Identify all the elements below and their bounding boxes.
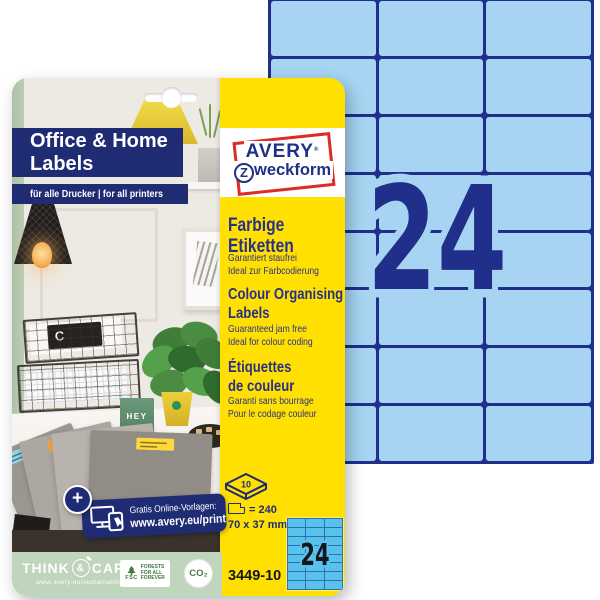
grid-paper <box>24 367 128 404</box>
label-cell <box>486 175 591 230</box>
feature-fr-1: Garanti sans bourrage <box>228 395 325 408</box>
section-features-de: Garantiert staufrei Ideal zur Farbcodier… <box>228 252 345 278</box>
label-cell <box>306 546 323 554</box>
label-cell <box>288 546 305 554</box>
think-care-logo: THINK&CARE <box>22 559 135 577</box>
sheet-count: 10 <box>241 480 251 490</box>
banner-title-line2: Labels <box>30 153 93 175</box>
label-cell <box>288 581 305 589</box>
sustainability-url: www.avery.eu/sustainability <box>36 579 126 586</box>
label-cell <box>325 519 342 527</box>
label-cell <box>306 563 323 571</box>
label-cell <box>325 581 342 589</box>
section-fr-line2: de couleur <box>228 377 325 396</box>
banner-title-line1: Office & Home <box>30 130 168 152</box>
think-text: THINK <box>22 560 70 576</box>
z-circle-icon: Z <box>234 163 254 183</box>
euro-hang-hole <box>144 87 198 109</box>
label-cell <box>325 563 342 571</box>
label-cell <box>306 555 323 563</box>
section-en-line2: Labels <box>228 304 325 323</box>
notebook: C <box>47 322 103 350</box>
feature-fr-2: Pour le codage couleur <box>228 408 325 421</box>
banner-subtitle: für alle Drucker | for all printers <box>30 184 164 204</box>
label-cell <box>306 572 323 580</box>
label-cell <box>325 537 342 545</box>
label-cell <box>325 528 342 536</box>
section-features-fr: Garanti sans bourrage Pour le codage cou… <box>228 395 345 421</box>
labels-per-pack: = 240 <box>249 504 277 516</box>
section-de-line1: Farbige <box>228 215 325 236</box>
mini-sheet-preview <box>287 518 343 590</box>
fsc-tree-icon <box>127 566 137 575</box>
zebra-art <box>193 241 219 287</box>
product-sku: 3449-10 <box>228 568 281 584</box>
printers-banner: für alle Drucker | for all printers <box>12 184 188 204</box>
feature-de-2: Ideal zur Farbcodierung <box>228 265 325 278</box>
folder-tab <box>136 438 174 451</box>
label-size: 70 x 37 mm <box>228 519 287 531</box>
brand-name-zweckform: Zweckform <box>220 161 345 183</box>
promo-banner: Gratis Online-Vorlagen: www.avery.eu/pri… <box>81 493 227 538</box>
label-cell <box>379 59 484 114</box>
registered-mark: ® <box>314 147 319 153</box>
lamp-bulb <box>32 242 52 268</box>
feature-en-1: Guaranteed jam free <box>228 323 325 336</box>
wire-tray-top: C <box>23 312 140 364</box>
co2-badge: CO₂ <box>184 559 213 588</box>
label-cell <box>486 406 591 461</box>
label-cell <box>486 290 591 345</box>
office-home-banner: Office & Home Labels <box>12 128 183 177</box>
brand-avery-text: AVERY <box>246 141 314 162</box>
hang-circle <box>161 87 182 108</box>
product-shot: 24 C <box>0 0 600 600</box>
plant-stem <box>209 104 211 138</box>
ampersand-leaf-icon: & <box>72 559 90 577</box>
labels-per-pack-row: = 240 <box>228 503 277 516</box>
label-shape-icon <box>228 503 245 514</box>
brand-name-avery: AVERY® <box>220 141 345 163</box>
plant-stem <box>199 108 208 136</box>
plus-badge: + <box>63 485 92 514</box>
label-cell <box>306 581 323 589</box>
section-title-en: Colour Organising Labels <box>228 285 345 323</box>
devices-icon <box>89 504 126 533</box>
section-title-fr: Étiquettes de couleur <box>228 358 345 396</box>
pot-sticker <box>172 401 181 410</box>
fsc-acronym: FSC <box>125 575 138 581</box>
label-cell <box>288 563 305 571</box>
section-features-en: Guaranteed jam free Ideal for colour cod… <box>228 323 345 349</box>
label-cell <box>486 348 591 403</box>
label-cell <box>325 572 342 580</box>
sheet-stack-icon: 10 <box>224 472 268 504</box>
section-en-line1: Colour Organising <box>228 285 325 304</box>
fsc-logo: FSC FORESTS FOR ALL FOREVER <box>120 560 170 587</box>
sustainability-bar: THINK&CARE www.avery.eu/sustainability F… <box>12 552 222 596</box>
feature-en-2: Ideal for colour coding <box>228 336 325 349</box>
label-cell <box>306 519 323 527</box>
label-cell <box>486 1 591 56</box>
feature-de-1: Garantiert staufrei <box>228 252 325 265</box>
label-cell <box>486 233 591 288</box>
brand-logo-panel: AVERY® Zweckform <box>220 128 345 197</box>
fsc-tagline: FORESTS FOR ALL FOREVER <box>141 565 165 582</box>
label-cell <box>306 537 323 545</box>
label-cell <box>288 519 305 527</box>
section-fr-line1: Étiquettes <box>228 358 325 377</box>
label-cell <box>486 59 591 114</box>
label-cell <box>379 233 484 288</box>
label-cell <box>325 546 342 554</box>
label-cell <box>271 1 376 56</box>
label-cell <box>288 528 305 536</box>
label-cell <box>486 117 591 172</box>
label-cell <box>288 537 305 545</box>
label-cell <box>325 555 342 563</box>
label-cell <box>379 290 484 345</box>
brand-zweckform-text: weckform <box>254 161 331 179</box>
label-cell <box>379 1 484 56</box>
label-cell <box>379 406 484 461</box>
label-cell <box>379 175 484 230</box>
label-cell <box>379 348 484 403</box>
section-title-de: Farbige Etiketten <box>228 215 345 257</box>
label-cell <box>288 555 305 563</box>
label-cell <box>306 528 323 536</box>
product-package: C HEY <box>12 78 345 596</box>
label-cell <box>288 572 305 580</box>
label-cell <box>379 117 484 172</box>
